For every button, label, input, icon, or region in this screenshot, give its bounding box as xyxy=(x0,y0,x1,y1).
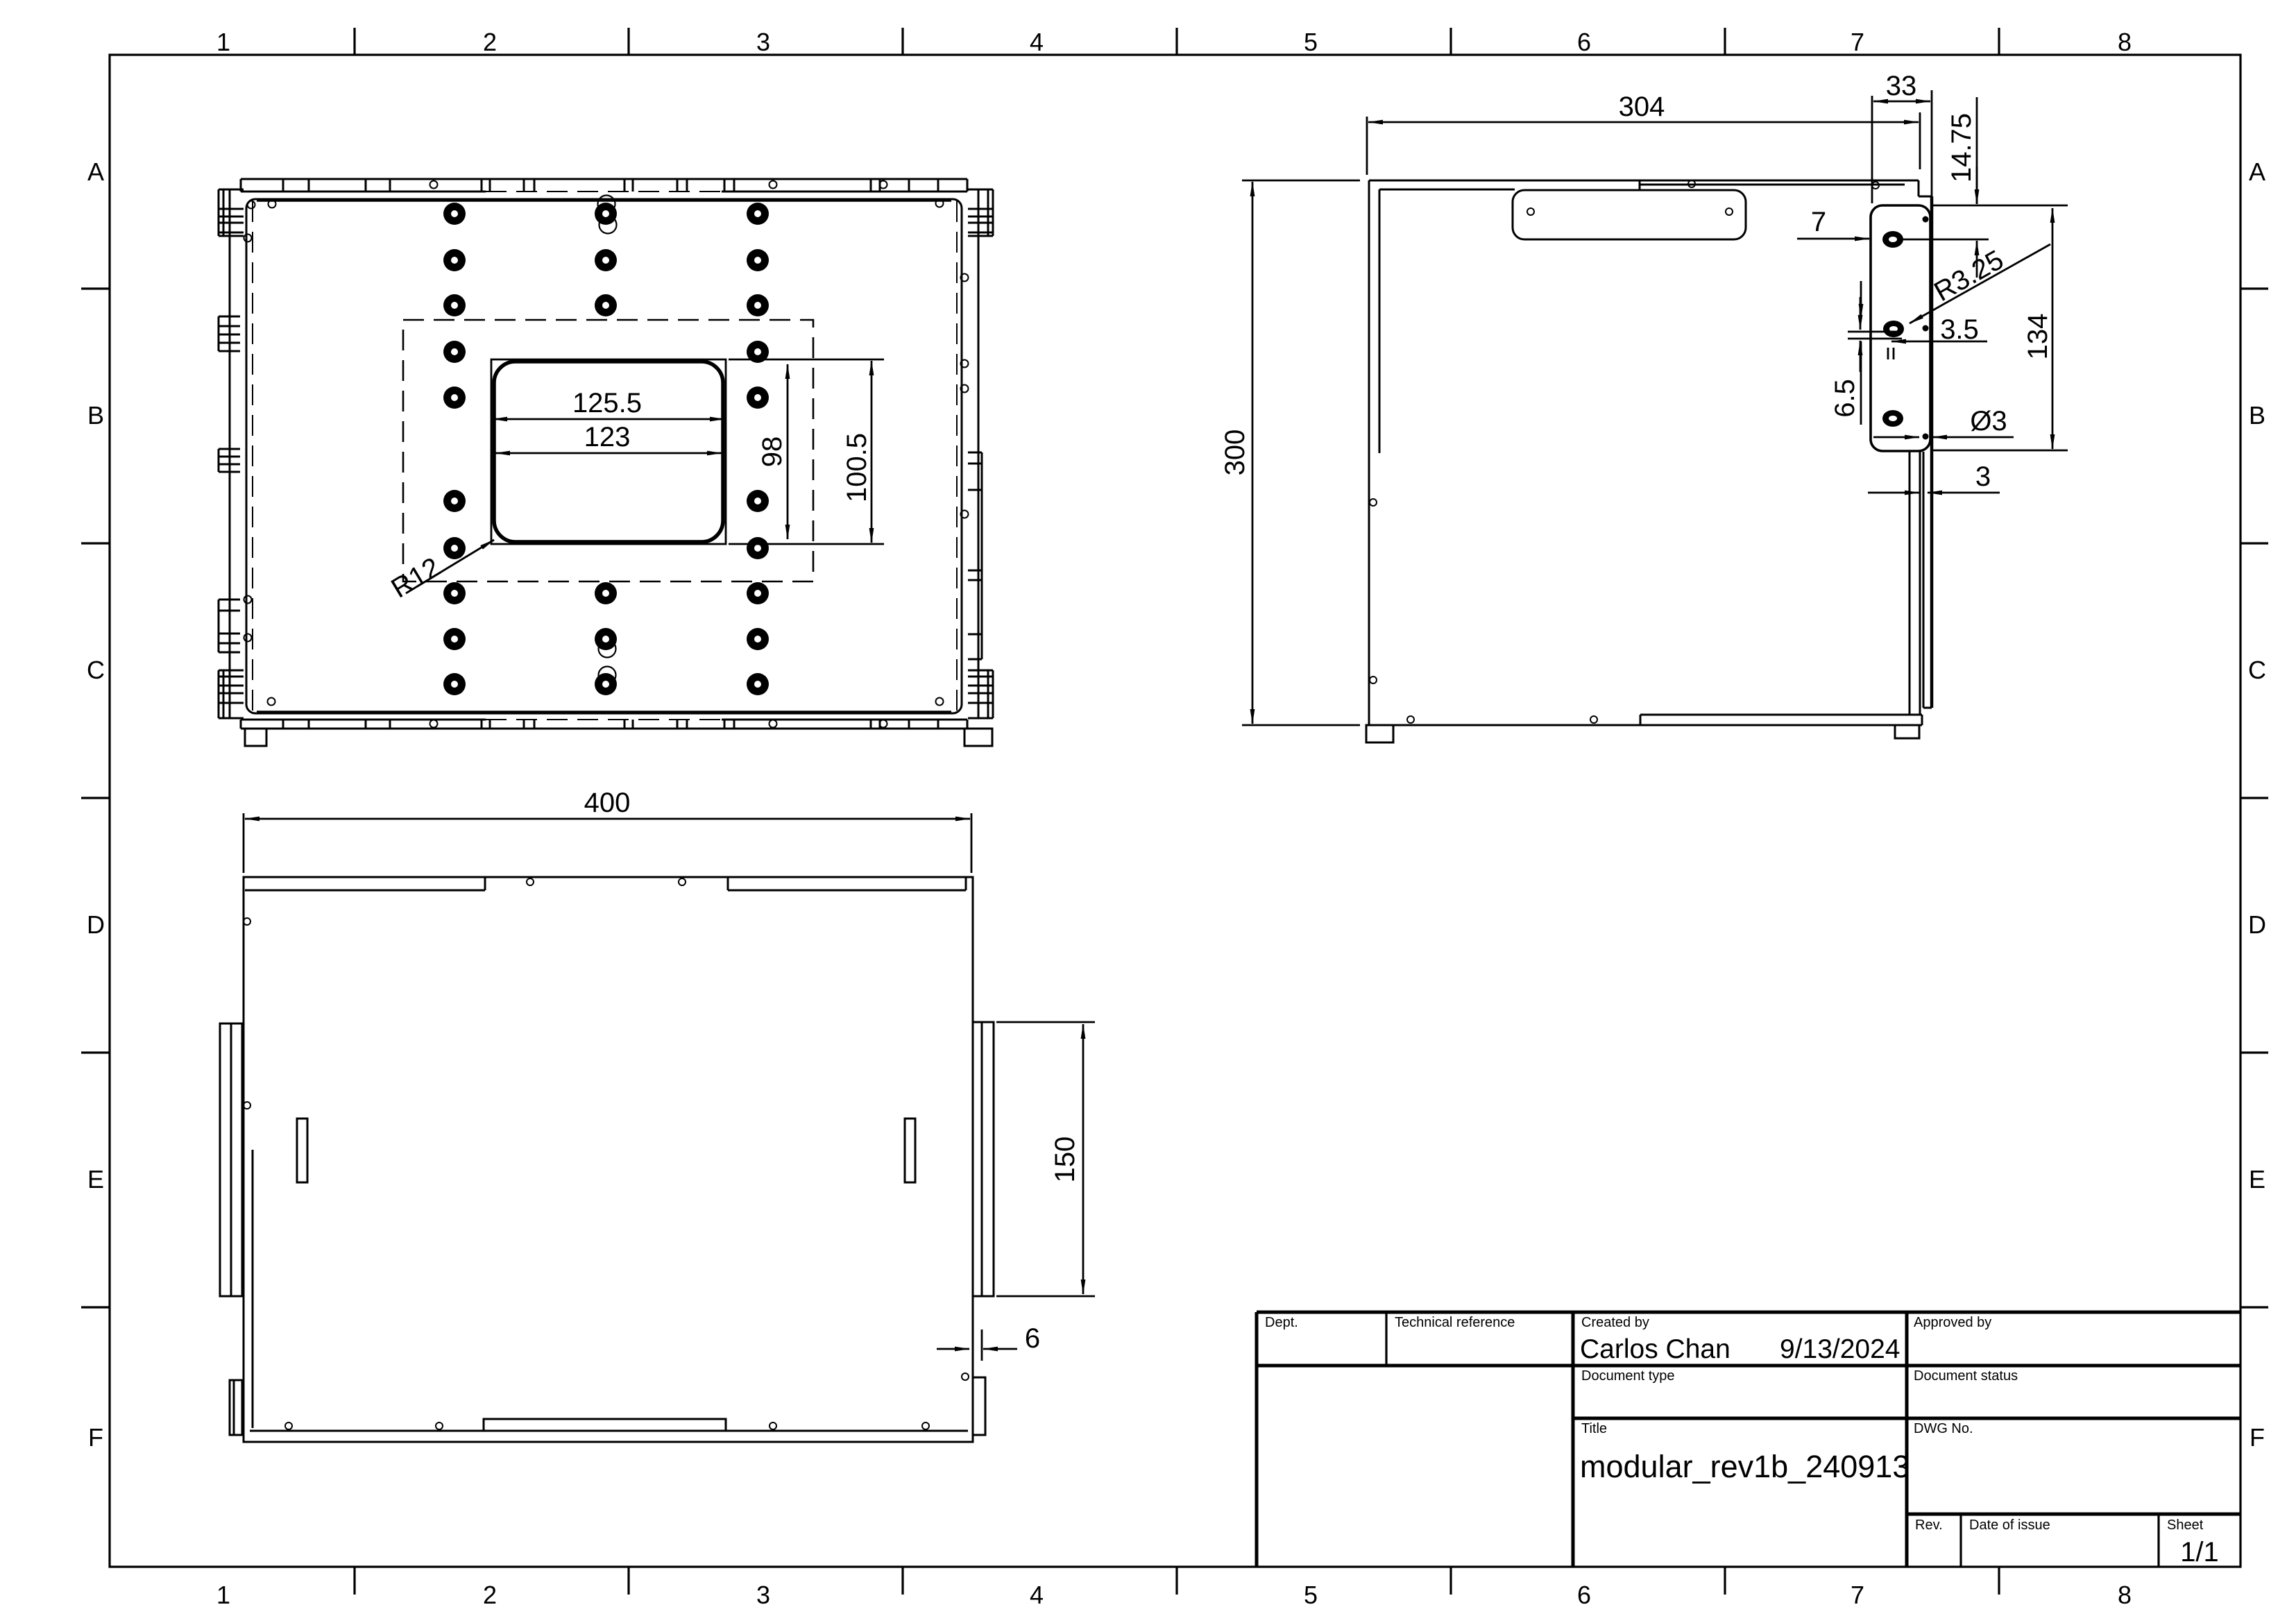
svg-text:3: 3 xyxy=(756,1581,770,1609)
svg-text:A: A xyxy=(87,158,104,186)
svg-text:F: F xyxy=(2250,1423,2265,1452)
svg-text:Sheet: Sheet xyxy=(2167,1518,2204,1533)
svg-text:100.5: 100.5 xyxy=(842,433,872,502)
svg-text:3: 3 xyxy=(756,28,770,56)
svg-text:modular_rev1b_240913: modular_rev1b_240913 xyxy=(1580,1449,1910,1484)
svg-text:33: 33 xyxy=(1886,71,1917,101)
svg-text:B: B xyxy=(2249,401,2265,430)
svg-text:300: 300 xyxy=(1220,430,1250,476)
svg-text:125.5: 125.5 xyxy=(572,388,642,418)
svg-text:E: E xyxy=(87,1165,104,1193)
svg-text:D: D xyxy=(87,910,105,939)
svg-text:Rev.: Rev. xyxy=(1915,1518,1943,1533)
svg-text:6.5: 6.5 xyxy=(1830,379,1860,418)
svg-text:Document type: Document type xyxy=(1581,1368,1675,1384)
svg-text:A: A xyxy=(2249,158,2265,186)
svg-text:7: 7 xyxy=(1851,28,1864,56)
svg-text:DWG No.: DWG No. xyxy=(1914,1421,1973,1436)
svg-text:14.75: 14.75 xyxy=(1946,113,1977,182)
svg-text:2: 2 xyxy=(483,1581,497,1609)
svg-text:C: C xyxy=(2248,656,2266,684)
svg-text:7: 7 xyxy=(1811,207,1826,237)
svg-text:4: 4 xyxy=(1030,1581,1044,1609)
svg-text:304: 304 xyxy=(1619,92,1665,122)
svg-text:6: 6 xyxy=(1577,28,1591,56)
svg-text:E: E xyxy=(2249,1165,2265,1193)
svg-text:Ø3: Ø3 xyxy=(1970,406,2007,436)
svg-text:1: 1 xyxy=(216,28,230,56)
svg-text:D: D xyxy=(2248,910,2266,939)
svg-text:F: F xyxy=(88,1423,103,1452)
svg-text:Carlos Chan: Carlos Chan xyxy=(1580,1334,1730,1364)
svg-text:6: 6 xyxy=(1577,1581,1591,1609)
svg-text:6: 6 xyxy=(1025,1323,1040,1354)
svg-text:C: C xyxy=(87,656,105,684)
svg-text:5: 5 xyxy=(1304,1581,1318,1609)
svg-text:Dept.: Dept. xyxy=(1265,1315,1298,1330)
svg-text:Title: Title xyxy=(1581,1421,1607,1436)
svg-text:1/1: 1/1 xyxy=(2180,1537,2219,1567)
svg-text:3.5: 3.5 xyxy=(1940,314,1979,345)
svg-text:Technical reference: Technical reference xyxy=(1395,1315,1515,1330)
svg-text:1: 1 xyxy=(216,1581,230,1609)
svg-text:B: B xyxy=(87,401,104,430)
svg-text:150: 150 xyxy=(1050,1137,1080,1183)
svg-text:400: 400 xyxy=(584,788,631,818)
svg-text:5: 5 xyxy=(1304,28,1318,56)
svg-text:Created by: Created by xyxy=(1581,1315,1649,1330)
svg-text:3: 3 xyxy=(1975,461,1991,492)
svg-text:8: 8 xyxy=(2118,28,2132,56)
svg-text:Approved by: Approved by xyxy=(1914,1315,1991,1330)
svg-text:134: 134 xyxy=(2023,314,2053,360)
svg-text:Date of issue: Date of issue xyxy=(1969,1518,2050,1533)
svg-text:4: 4 xyxy=(1030,28,1044,56)
svg-text:123: 123 xyxy=(584,422,631,452)
svg-text:98: 98 xyxy=(757,436,788,468)
svg-text:8: 8 xyxy=(2118,1581,2132,1609)
svg-text:2: 2 xyxy=(483,28,497,56)
svg-text:Document status: Document status xyxy=(1914,1368,2018,1384)
svg-text:9/13/2024: 9/13/2024 xyxy=(1780,1334,1900,1364)
svg-text:7: 7 xyxy=(1851,1581,1864,1609)
